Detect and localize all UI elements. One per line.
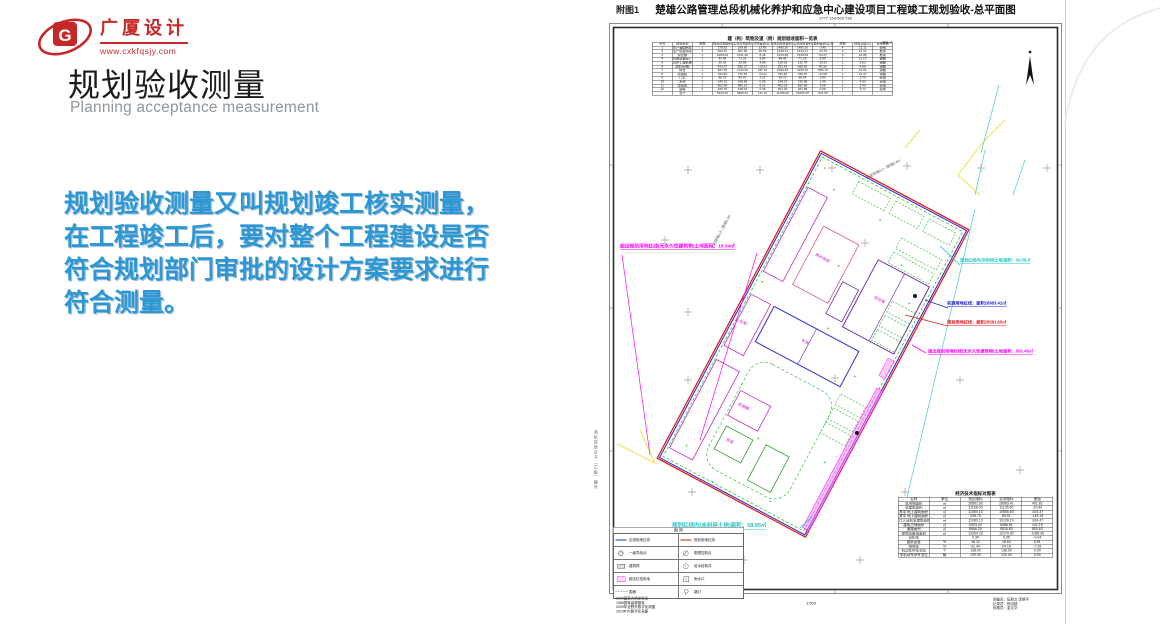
drawing-subtitle: 2777.154-600.738 (609, 16, 1062, 21)
legend-label: 一级导线点 (629, 551, 647, 556)
legend-item: 雨水口 (679, 573, 744, 586)
company-logo: G 广厦设计 www.cxkfqsjy.com (36, 10, 188, 62)
page-subtitle: Planning acceptance measurement (70, 99, 319, 117)
legend-item: 一级导线点 (614, 547, 679, 560)
body-paragraph: 规划验收测量又叫规划竣工核实测量， 在工程竣工后，要对整个工程建设是否 符合规划… (64, 188, 544, 320)
econ-table-title: 经济技术指标对照表 (898, 490, 1053, 497)
circle-dot-icon (681, 563, 693, 569)
body-line: 在工程竣工后，要对整个工程建设是否 (64, 221, 544, 254)
square-dot-icon (681, 576, 693, 582)
legend-label: 实测用地红线 (629, 538, 650, 543)
annotation-unused-top: 规划红线内(未利用土地)面积：59.08㎡ (960, 257, 1030, 264)
brand-name: 广厦设计 (100, 14, 188, 44)
annotation-over-line-right: 超出规划用地红线(无永久性建筑物)土地面积：502.46㎡ (928, 348, 1033, 355)
legend-label: 雨水口 (694, 577, 705, 582)
drawing-title: 楚雄公路管理总段机械化养护和应急中心建设项目工程竣工规划验收-总平面图 (609, 2, 1062, 17)
area-table-title: 建（构）筑物及道（附）规划验收面积一览表 (652, 35, 893, 42)
circle-hatch-icon (616, 550, 628, 556)
legend-label: 路灯 (694, 590, 701, 595)
scale-label: 1:500 (806, 601, 816, 606)
annotation-over-line-left: 超出规划用地红线(无永久性建筑物)土地面积：18.34㎡ (620, 242, 735, 250)
dashdot-icon (616, 589, 628, 595)
line-red-icon (681, 537, 693, 543)
rect-pink-icon (616, 576, 628, 582)
survey-point (855, 431, 859, 435)
slide-canvas: G 广厦设计 www.cxkfqsjy.com 规划验收测量 Planning … (0, 0, 1163, 624)
survey-point (913, 294, 917, 298)
economic-indicator-table: 经济技术指标对照表 名称单位规划指标实测指标差值总用地面积㎡28581.6028… (898, 490, 1053, 558)
area-table-unit: 单位:㎡ (882, 40, 892, 45)
brand-website: www.cxkfqsjy.com (100, 46, 188, 56)
figure-label: 附图1 (616, 3, 639, 16)
legend: 图 例 实测用地红线规划用地红线一级导线点图根控制点建筑物给水检修井超出红线用地… (613, 527, 744, 599)
legend-label: 超出红线用地 (629, 577, 650, 582)
legend-label: 建筑物 (629, 564, 640, 569)
legend-label: 图根控制点 (694, 551, 712, 556)
line-blue-icon (616, 537, 628, 543)
body-line: 符合测量。 (64, 287, 544, 320)
legend-item: 建筑物 (614, 560, 679, 573)
legend-item: 路灯 (679, 586, 744, 599)
legend-label: 给水检修井 (694, 564, 712, 569)
legend-label: 围墙 (629, 590, 636, 595)
legend-label: 规划用地红线 (694, 538, 715, 543)
note-line: 校核员：金文华 (993, 607, 1029, 611)
decorative-arc (1060, 0, 1163, 130)
legend-item: 规划用地红线 (679, 534, 744, 547)
survey-notes: 2000国家大地坐标系1985国家高程基准2009年全野外数字化测图2019RT… (616, 597, 655, 614)
table-row: 非机动车停车泊位辆120.00120.000.00 (898, 553, 1053, 557)
lamp-icon (681, 589, 693, 595)
annotation-planned-line: 规划用地红线：面积28581.60㎡ (947, 319, 1006, 326)
legend-item: 给水检修井 (679, 560, 744, 573)
circle-cross-icon (681, 550, 693, 556)
legend-item: 图根控制点 (679, 547, 744, 560)
note-line: 2019RTK数字化采集 (616, 610, 655, 614)
legend-item: 实测用地红线 (614, 534, 679, 547)
legend-item: 超出红线用地 (614, 573, 679, 586)
staff-signatures: 测量员：伍勃文 李根平记录员：杨洪超校核员：金文华 (993, 598, 1029, 611)
svg-text:G: G (58, 26, 71, 45)
body-line: 符合规划部门审批的设计方案要求进行 (64, 254, 544, 287)
building-area-table: 建（构）筑物及道（附）规划验收面积一览表 单位:㎡ 序号建筑名称层数规划占地面积… (652, 35, 893, 96)
rect-gray-icon (616, 563, 628, 569)
body-line: 规划验收测量又叫规划竣工核实测量， (64, 188, 544, 221)
annotation-measured-line: 实测用地红线：面积28983.41㎡ (947, 300, 1006, 307)
logo-swoosh-icon: G (36, 10, 94, 62)
table-row: 合计5323.405486.81141.1511156.0010206.00-9… (652, 92, 893, 96)
margin-certificate-note: 测绘资质证书（乙级）编号 (593, 430, 599, 570)
